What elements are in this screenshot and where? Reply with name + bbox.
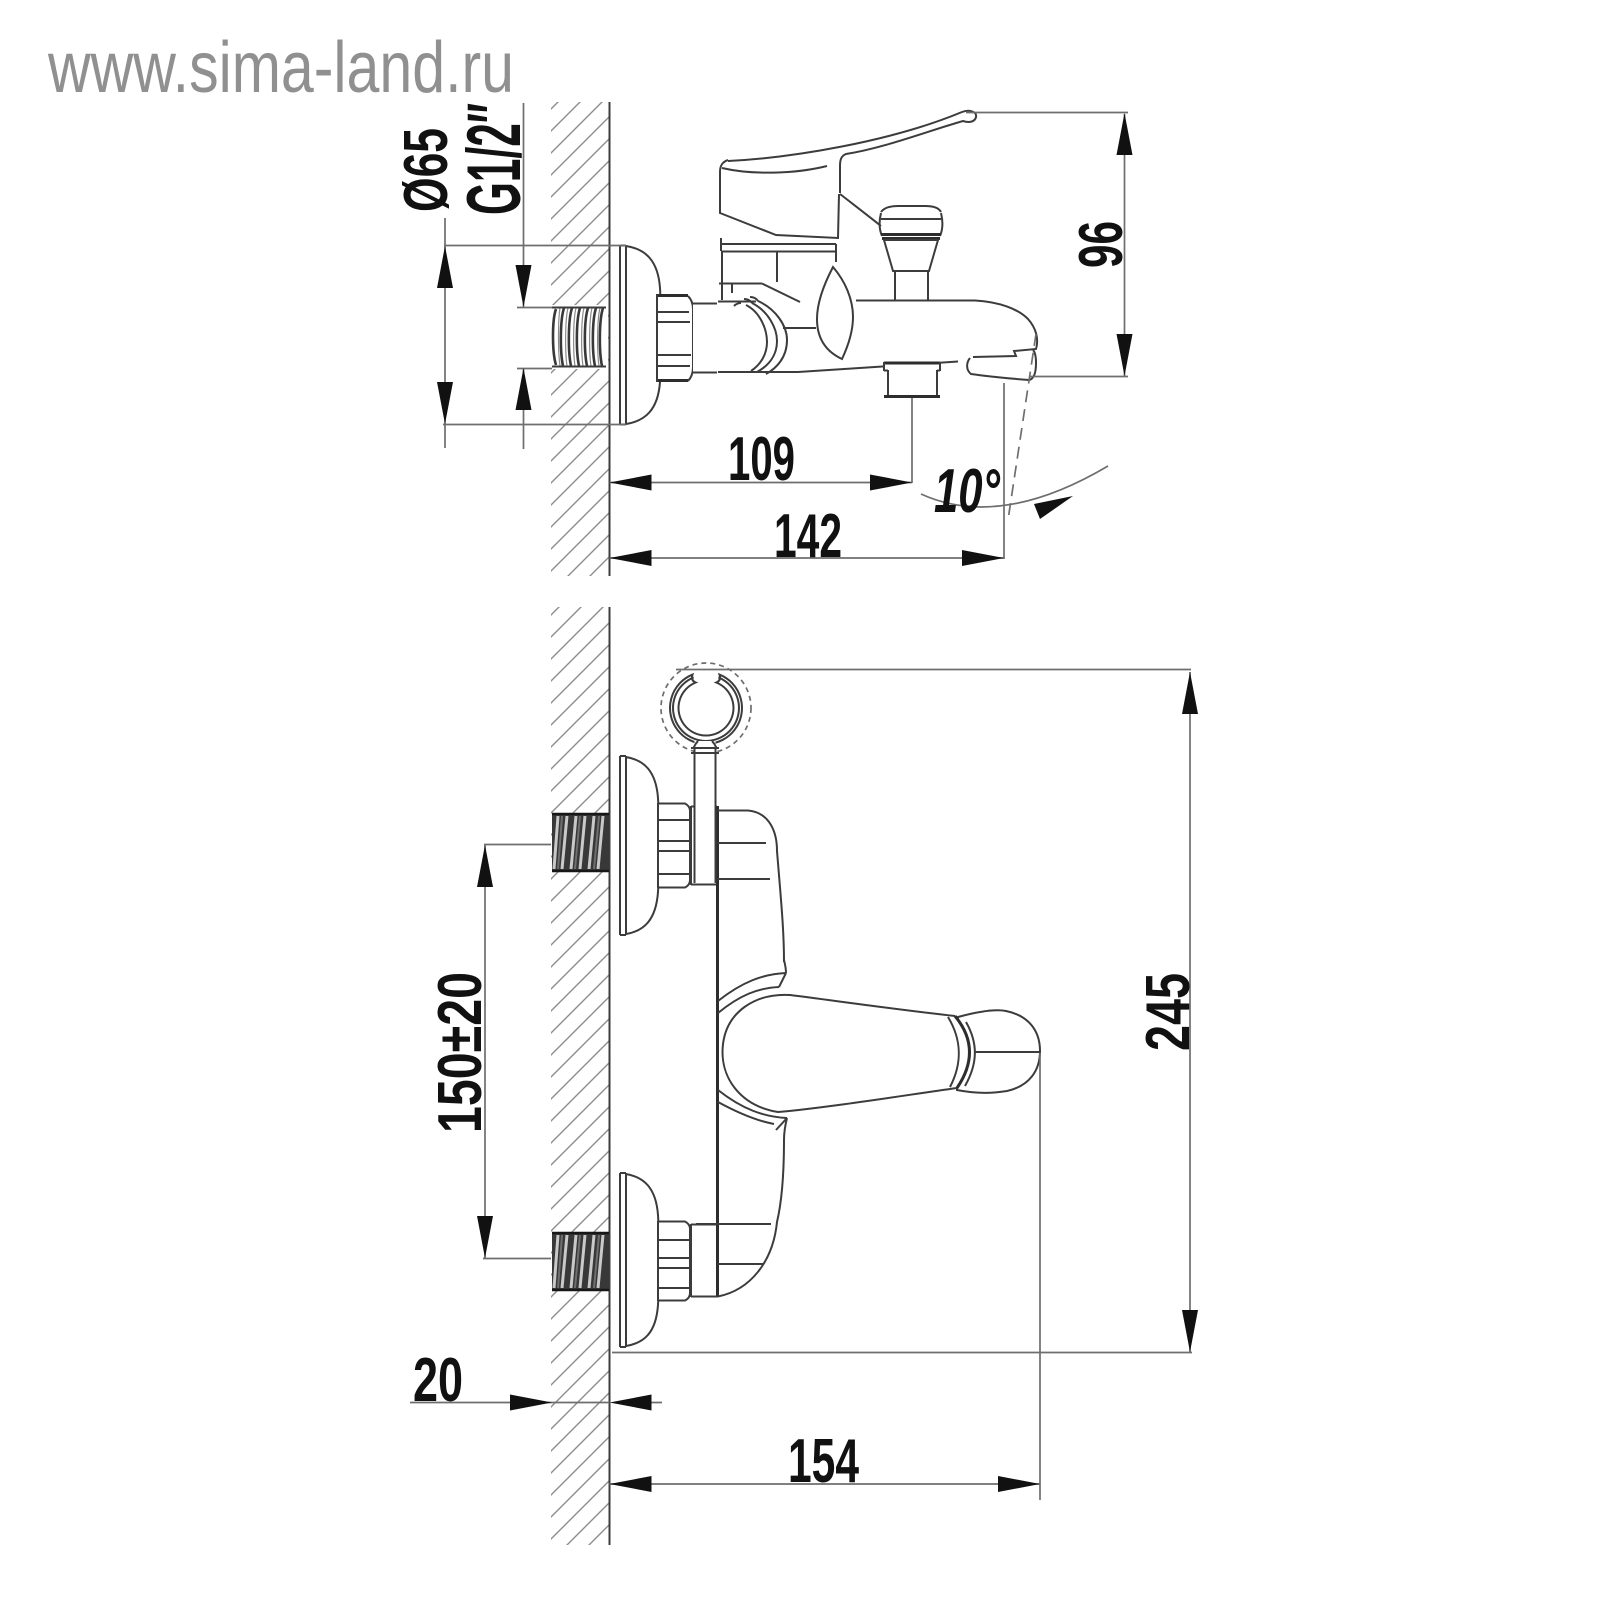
svg-text:142: 142 (774, 502, 842, 571)
svg-text:G1/2″: G1/2″ (452, 103, 537, 215)
svg-text:www.sima-land.ru: www.sima-land.ru (47, 28, 514, 108)
svg-text:245: 245 (1134, 973, 1203, 1051)
svg-text:96: 96 (1067, 221, 1136, 268)
svg-text:20: 20 (413, 1346, 463, 1415)
svg-text:10°: 10° (934, 457, 1001, 526)
svg-text:150±20: 150±20 (426, 972, 495, 1133)
svg-text:109: 109 (728, 425, 795, 494)
svg-text:154: 154 (788, 1427, 859, 1496)
svg-text:Ø65: Ø65 (392, 128, 461, 212)
